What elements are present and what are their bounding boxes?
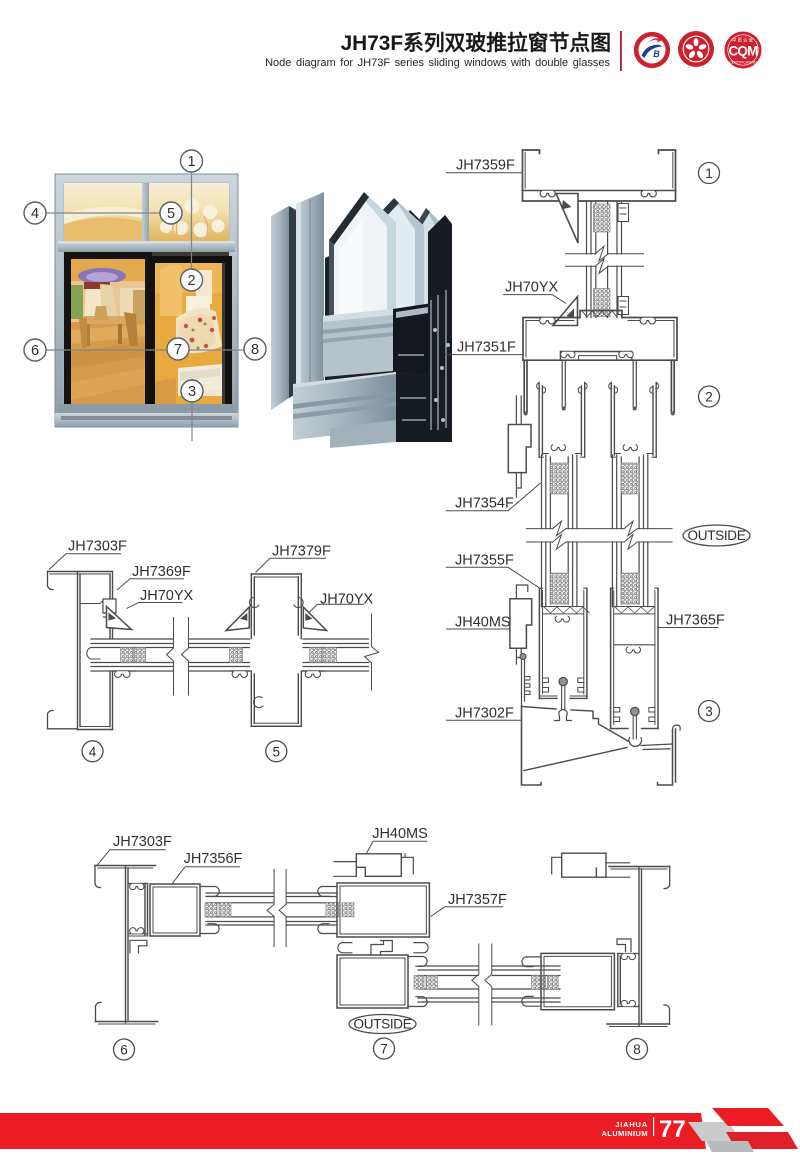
svg-text:JH7356F: JH7356F: [184, 851, 243, 867]
svg-text:JH7357F: JH7357F: [448, 892, 507, 908]
svg-text:8: 8: [633, 1042, 641, 1057]
svg-text:JH7354F: JH7354F: [455, 496, 514, 512]
svg-text:7: 7: [380, 1042, 388, 1057]
svg-text:OUTSIDE: OUTSIDE: [688, 528, 746, 543]
svg-text:1: 1: [705, 166, 713, 181]
svg-text:Node diagram for JH73F series: Node diagram for JH73F series sliding wi…: [265, 57, 610, 69]
svg-text:JH73F系列双玻推拉窗节点图: JH73F系列双玻推拉窗节点图: [341, 31, 611, 55]
svg-text:3: 3: [705, 704, 713, 719]
svg-text:中质认证: 中质认证: [732, 37, 754, 44]
svg-text:2: 2: [187, 273, 195, 289]
svg-text:5: 5: [167, 206, 175, 222]
svg-text:JH70YX: JH70YX: [505, 280, 559, 296]
svg-text:B: B: [653, 49, 660, 59]
svg-text:JH7359F: JH7359F: [456, 158, 515, 174]
svg-text:OUTSIDE: OUTSIDE: [354, 1017, 412, 1032]
svg-text:7: 7: [174, 342, 182, 358]
svg-text:JH7302F: JH7302F: [455, 706, 514, 722]
svg-text:JH70YX: JH70YX: [140, 588, 194, 604]
svg-text:4: 4: [89, 744, 97, 759]
svg-text:6: 6: [120, 1043, 128, 1058]
svg-text:JH7365F: JH7365F: [666, 613, 725, 629]
svg-text:8: 8: [251, 342, 259, 358]
svg-text:JH7355F: JH7355F: [455, 553, 514, 569]
svg-text:5: 5: [273, 744, 281, 759]
svg-text:6: 6: [31, 343, 39, 359]
svg-text:JH40MS: JH40MS: [455, 615, 511, 631]
svg-text:ALUMINIUM: ALUMINIUM: [601, 1129, 648, 1138]
svg-text:JH70YX: JH70YX: [320, 592, 374, 608]
svg-text:CQM: CQM: [728, 44, 758, 59]
svg-text:2: 2: [705, 390, 713, 405]
svg-text:JH7351F: JH7351F: [457, 340, 516, 356]
svg-text:4: 4: [31, 206, 39, 222]
svg-text:JH7303F: JH7303F: [68, 539, 127, 555]
svg-text:77: 77: [659, 1116, 686, 1143]
svg-text:JH40MS: JH40MS: [372, 826, 428, 842]
svg-text:1: 1: [187, 154, 195, 170]
svg-text:3: 3: [188, 384, 196, 400]
svg-text:JH7303F: JH7303F: [113, 834, 172, 850]
svg-text:JH7369F: JH7369F: [132, 564, 191, 580]
svg-text:JH7379F: JH7379F: [272, 544, 331, 560]
svg-text:CERTIFICATION: CERTIFICATION: [729, 61, 757, 65]
svg-text:JIAHUA: JIAHUA: [615, 1120, 648, 1129]
